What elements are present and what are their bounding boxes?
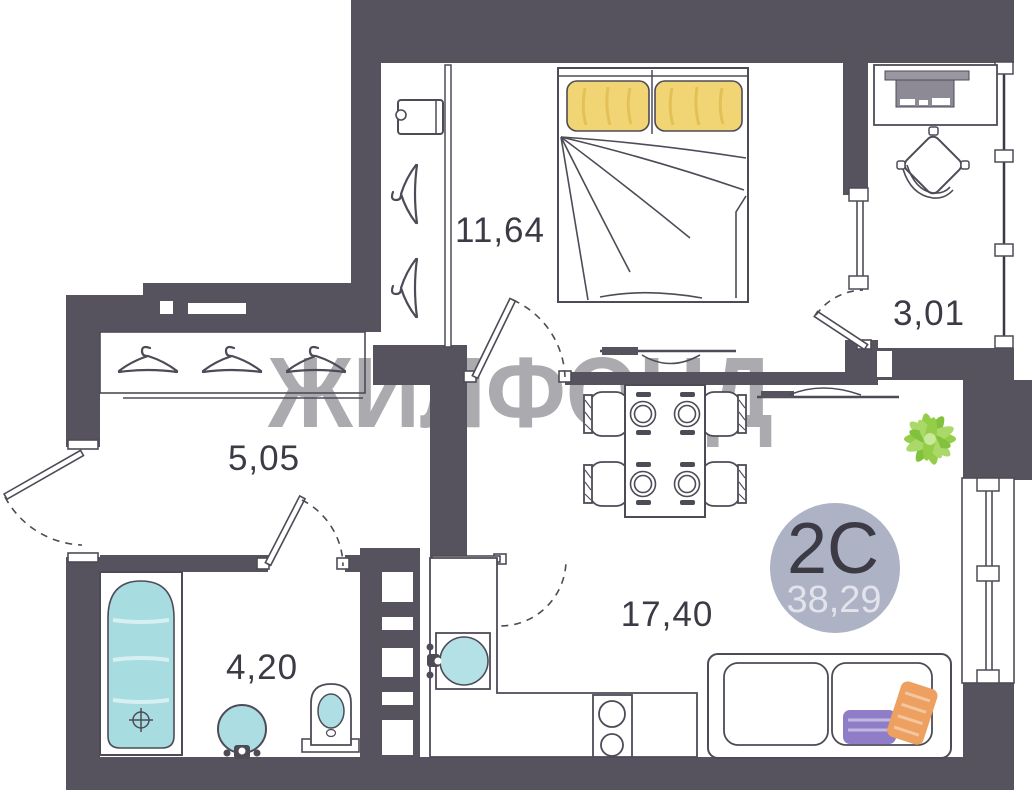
wall-right-upper-corner (963, 380, 1032, 480)
bedroom-area-label: 11,64 (455, 211, 545, 250)
stove (593, 695, 632, 757)
wall-hall-top-step (143, 283, 381, 297)
wall-niche-long (188, 303, 246, 314)
hallway-area-label: 5,05 (228, 439, 300, 478)
dining-chair (702, 462, 746, 506)
window-mullion (995, 336, 1013, 348)
badge-total-area: 38,29 (786, 579, 881, 621)
wall-bath-left (66, 557, 100, 790)
door-cap (68, 553, 98, 562)
bed (558, 68, 748, 302)
wall-niche-small (160, 301, 173, 314)
balcony-window-cap (977, 566, 999, 581)
wall-bedroom-living-divider (565, 372, 845, 385)
wall-loggia-living-divider (878, 348, 1014, 380)
living-area-label: 17,40 (621, 595, 714, 634)
bathtub (100, 572, 182, 755)
dining-chair (702, 392, 746, 436)
door-cap (68, 440, 98, 449)
window-mullion (995, 150, 1013, 162)
wall-hall-left (66, 295, 100, 447)
window-mullion (995, 244, 1013, 256)
bath-sink (218, 705, 266, 759)
wall-bath-top-left (100, 555, 268, 572)
sofa-cushion (724, 663, 828, 745)
area-badge: 2C 38,29 (770, 503, 900, 633)
loggia-area-label: 3,01 (893, 294, 965, 333)
wall-right-lower-corner (963, 683, 1014, 760)
shaft-opening (382, 648, 413, 677)
shaft-opening (382, 572, 413, 602)
shaft-opening (382, 720, 413, 755)
balcony-window-cap (977, 478, 999, 491)
partition-cap (849, 276, 868, 289)
partition-cap (849, 188, 868, 201)
balcony-window-cap (977, 670, 999, 683)
wall-bedroom-door-block (373, 345, 467, 385)
dining-table (625, 385, 705, 517)
floorplan-canvas: ЖИЛФОНД (0, 0, 1032, 795)
badge-type-label: 2C (787, 509, 879, 589)
wall-niche-loggia (877, 351, 892, 377)
sofa (708, 654, 951, 758)
floorplan-drawing: ЖИЛФОНД (0, 0, 1032, 795)
wall-bedroom-loggia (843, 63, 868, 195)
wardrobe-box-hook (396, 110, 406, 120)
shaft-opening (382, 692, 413, 705)
wall-kitchen-divider (430, 383, 467, 562)
shaft-opening (382, 617, 413, 630)
wardrobe-slider (445, 65, 451, 347)
bathroom-area-label: 4,20 (226, 648, 298, 687)
wall-bottom (66, 757, 1014, 790)
wall-bedroom-left (351, 0, 381, 332)
kitchen-sink (427, 633, 491, 689)
wall-top (351, 0, 1014, 63)
